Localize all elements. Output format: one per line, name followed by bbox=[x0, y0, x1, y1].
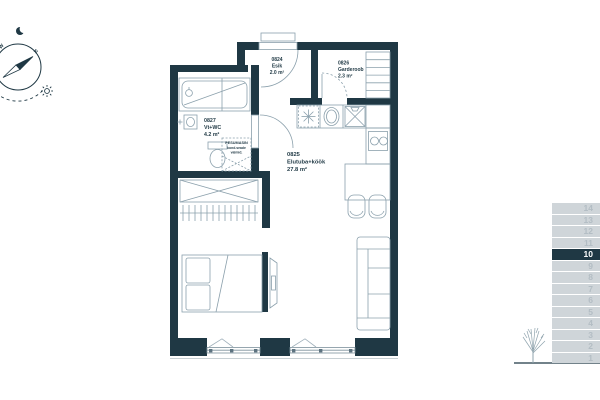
floor-row[interactable]: 2 bbox=[552, 341, 600, 352]
wardrobe-shelves bbox=[366, 52, 390, 98]
svg-text:kond.seade: kond.seade bbox=[227, 146, 246, 150]
floor-row[interactable]: 11 bbox=[552, 238, 600, 249]
bathroom-door-swing-arc bbox=[260, 115, 293, 148]
svg-text:0826: 0826 bbox=[338, 61, 349, 67]
floor-row[interactable]: 4 bbox=[552, 318, 600, 329]
svg-text:Elutuba+köök: Elutuba+köök bbox=[287, 160, 326, 166]
stove bbox=[345, 107, 365, 127]
hanger-rail bbox=[180, 205, 258, 221]
floor-row[interactable]: 6 bbox=[552, 295, 600, 306]
tv bbox=[270, 258, 277, 308]
washing-machine-label: PESUMASIN kond.seade valmid. bbox=[225, 141, 248, 155]
svg-text:PESUMASIN: PESUMASIN bbox=[225, 141, 248, 145]
svg-text:27.8 m²: 27.8 m² bbox=[287, 166, 307, 173]
floor-row[interactable]: 12 bbox=[552, 226, 600, 237]
bed bbox=[182, 255, 262, 312]
floor-row[interactable]: 5 bbox=[552, 307, 600, 318]
kitchen-sink bbox=[324, 108, 339, 126]
floor-plan: N W bbox=[0, 0, 600, 400]
kitchen-tall-unit bbox=[366, 128, 390, 164]
svg-text:Garderoob: Garderoob bbox=[338, 67, 364, 73]
floor-row[interactable]: 1 bbox=[552, 353, 600, 364]
toilet bbox=[208, 142, 227, 168]
compass-needle bbox=[3, 57, 33, 78]
svg-text:0825: 0825 bbox=[287, 152, 301, 158]
compass-west-label: W bbox=[0, 43, 6, 51]
window-left bbox=[207, 339, 260, 353]
window-right bbox=[290, 339, 355, 353]
dining-chair bbox=[348, 195, 365, 218]
floor-row[interactable]: 3 bbox=[552, 330, 600, 341]
floor-row[interactable]: 8 bbox=[552, 272, 600, 283]
svg-text:0824: 0824 bbox=[271, 57, 282, 63]
room-label-garderoob: 0826 Garderoob 2.3 m² bbox=[338, 61, 364, 80]
dining-table bbox=[345, 164, 390, 200]
compass-rose: N W bbox=[0, 25, 53, 101]
sofa bbox=[357, 237, 390, 330]
floor-row[interactable]: 13 bbox=[552, 215, 600, 226]
svg-text:2.0 m²: 2.0 m² bbox=[270, 70, 285, 76]
svg-text:0827: 0827 bbox=[204, 118, 216, 124]
svg-text:valmid.: valmid. bbox=[231, 151, 243, 155]
appliance-provision bbox=[299, 106, 319, 127]
floor-indicator: 14 13 12 11 10 9 8 7 6 5 4 3 2 1 bbox=[552, 203, 600, 363]
bathroom-door bbox=[252, 115, 294, 148]
sun-path-arc bbox=[0, 89, 44, 101]
floor-row[interactable]: 9 bbox=[552, 261, 600, 272]
dining-chair bbox=[369, 195, 386, 218]
doors bbox=[252, 33, 348, 148]
shower-bath bbox=[179, 78, 250, 111]
svg-text:2.3 m²: 2.3 m² bbox=[338, 74, 353, 80]
svg-text:4.2 m²: 4.2 m² bbox=[204, 132, 220, 138]
shower-head-icon bbox=[186, 87, 193, 96]
floor-row[interactable]: 7 bbox=[552, 284, 600, 295]
two-ring-hob bbox=[369, 132, 388, 151]
walls bbox=[170, 42, 398, 356]
room-labels: 0824 Esik 2.0 m² 0826 Garderoob 2.3 m² 0… bbox=[204, 57, 364, 173]
svg-text:Vt+WC: Vt+WC bbox=[204, 125, 221, 131]
kitchen-counter bbox=[297, 105, 390, 128]
asterisk-icon bbox=[302, 110, 316, 124]
closet-niche bbox=[180, 180, 258, 202]
floor-row[interactable]: 14 bbox=[552, 203, 600, 214]
room-label-living: 0825 Elutuba+köök 27.8 m² bbox=[287, 152, 326, 173]
room-label-esik: 0824 Esik 2.0 m² bbox=[270, 57, 285, 76]
floor-row[interactable]: 10 bbox=[552, 249, 600, 260]
floorplan-page: N W bbox=[0, 0, 600, 400]
tree-icon bbox=[523, 328, 545, 363]
moon-icon bbox=[16, 25, 28, 35]
washbasin bbox=[178, 115, 198, 129]
svg-text:Esik: Esik bbox=[272, 64, 283, 70]
room-label-wc: 0827 Vt+WC 4.2 m² bbox=[204, 118, 221, 138]
